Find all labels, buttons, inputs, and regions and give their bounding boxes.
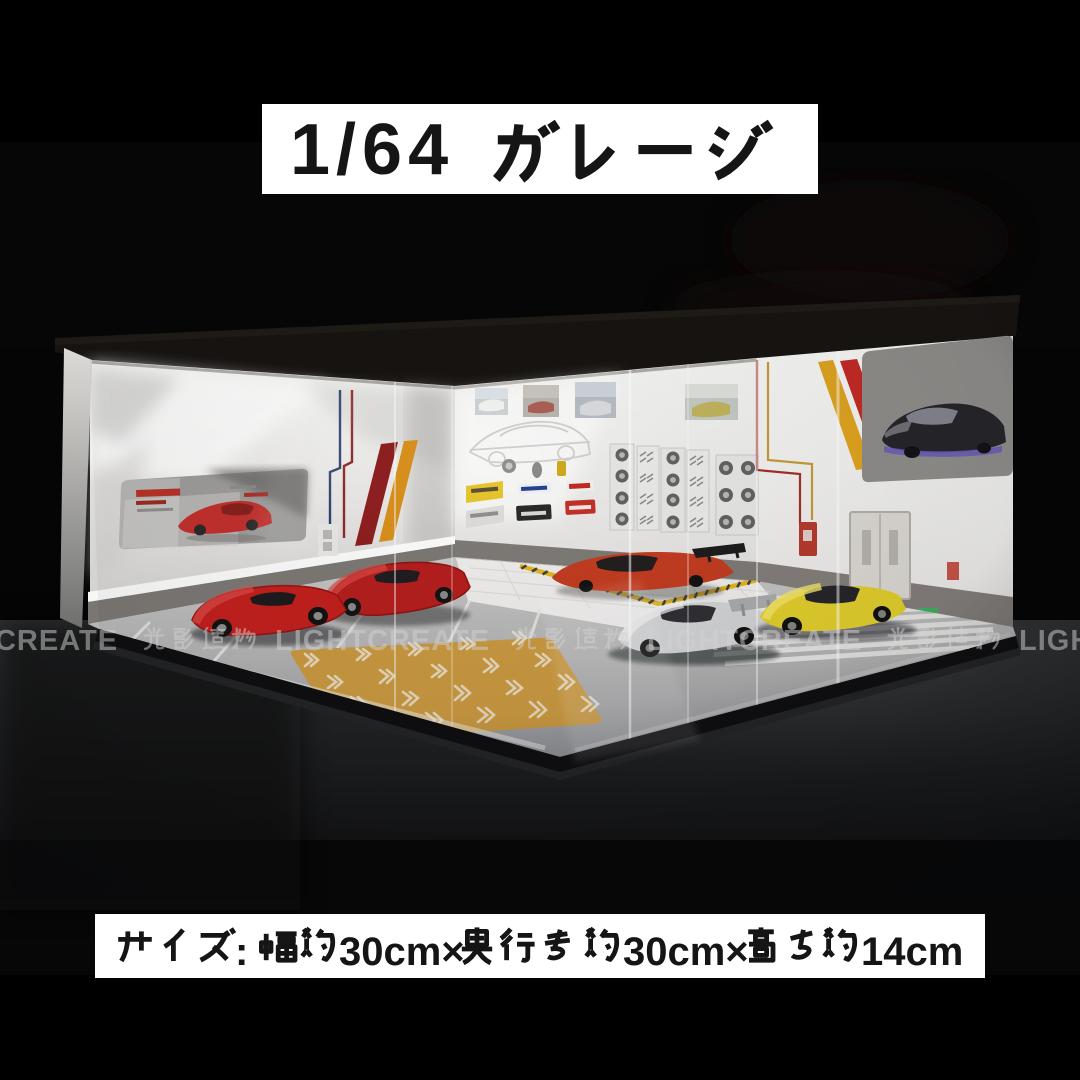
svg-text:LIGHTCREATE: LIGHTCREATE bbox=[0, 625, 118, 657]
svg-text:14cm: 14cm bbox=[861, 930, 963, 974]
svg-text:1/64: 1/64 bbox=[290, 110, 454, 190]
svg-text:LIGHTCREATE: LIGHTCREATE bbox=[275, 625, 490, 657]
svg-text:LIGHTCREATE: LIGHTCREATE bbox=[1019, 625, 1080, 657]
svg-text:30cm×: 30cm× bbox=[339, 930, 465, 974]
svg-text::: : bbox=[235, 930, 259, 974]
svg-text:30cm×: 30cm× bbox=[623, 930, 749, 974]
svg-text:LIGHTCREATE: LIGHTCREATE bbox=[647, 625, 862, 657]
